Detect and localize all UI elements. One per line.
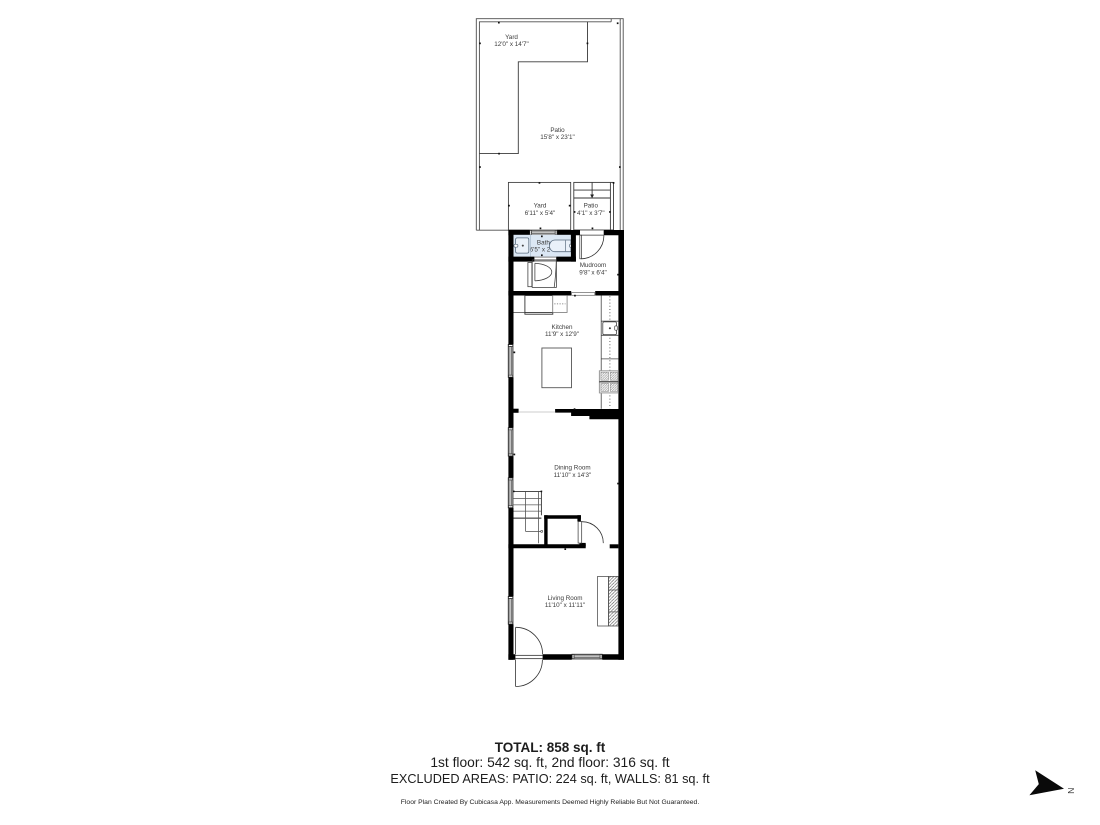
svg-text:Bath: Bath (537, 240, 550, 247)
svg-text:Patio: Patio (550, 127, 565, 134)
svg-text:6'11" x 5'4": 6'11" x 5'4" (525, 210, 556, 217)
svg-text:Kitchen: Kitchen (551, 324, 573, 331)
svg-text:Mudroom: Mudroom (580, 262, 607, 269)
svg-text:N: N (1066, 788, 1076, 794)
svg-text:Living Room: Living Room (548, 595, 583, 602)
svg-text:11'9" x 12'9": 11'9" x 12'9" (545, 331, 579, 338)
svg-text:12'0" x 14'7": 12'0" x 14'7" (494, 41, 529, 48)
svg-text:15'8" x 23'1": 15'8" x 23'1" (540, 134, 575, 141)
svg-text:4'1" x 3'7": 4'1" x 3'7" (577, 210, 605, 217)
svg-text:Patio: Patio (584, 202, 599, 209)
svg-text:Dining Room: Dining Room (554, 465, 590, 472)
svg-text:11'10" x 11'11": 11'10" x 11'11" (545, 602, 585, 609)
svg-text:11'10" x 14'3": 11'10" x 14'3" (554, 472, 592, 479)
svg-text:Yard: Yard (534, 202, 547, 209)
svg-text:9'8" x 6'4": 9'8" x 6'4" (579, 270, 607, 277)
